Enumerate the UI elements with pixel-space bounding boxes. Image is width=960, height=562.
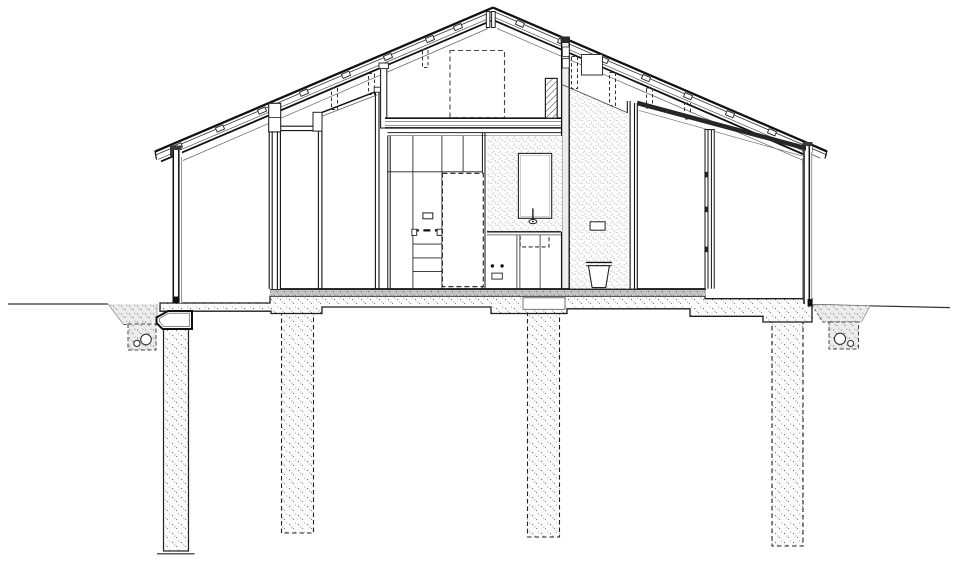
floor-slab (157, 289, 813, 329)
pile-2 (282, 312, 314, 533)
toilet-body (588, 266, 609, 288)
floor-screed-band (270, 289, 706, 296)
porch-ceiling-line (639, 110, 803, 156)
right-wall-base-plate (808, 299, 812, 307)
pile-1 (164, 328, 189, 551)
wall-c-top-cap (561, 37, 570, 44)
knob-right (500, 264, 503, 267)
slab-recessed-box (523, 298, 565, 310)
sink-dashed-outline (520, 236, 549, 247)
edge-beam-detail (157, 311, 193, 329)
worktop-bracket-left (412, 229, 417, 235)
worktop-bracket-right (437, 229, 442, 235)
roof-left-line3 (158, 18, 491, 160)
loft-post-cap (379, 63, 388, 69)
roof-vent-box (582, 55, 603, 76)
drain-pipe-large-left (141, 334, 152, 345)
knob-left (491, 264, 494, 267)
wall-c-body (561, 42, 570, 288)
porch-roof-beam (637, 101, 806, 151)
roof-right-line2 (493, 11, 827, 155)
wall-outlet (590, 222, 605, 230)
slab-outline (160, 296, 812, 322)
kitchen (388, 133, 485, 289)
sloped-panel-top-line (322, 91, 378, 113)
faucet-dot (532, 221, 534, 223)
left-wall-base-plate (173, 297, 179, 304)
foundation-piles (157, 312, 803, 554)
roof-left-top-line (155, 8, 493, 152)
drain-pipe-large-right (834, 333, 845, 344)
refrigerator-dashed-outline (442, 173, 483, 286)
sloped-panel-top-line2 (322, 95, 378, 117)
drawer-handle (492, 273, 502, 279)
toilet-room-wall-stipple (570, 88, 628, 289)
ridge-post-left (486, 12, 490, 28)
pile-4 (772, 321, 803, 546)
loft (385, 51, 561, 136)
loft-floor-body (385, 118, 561, 128)
pile-3 (528, 312, 560, 537)
mirror (518, 153, 551, 218)
wall-c-block2 (562, 59, 569, 69)
drain-pipe-small-left (134, 340, 140, 346)
chimney-hatch-cut (545, 78, 557, 118)
wall-d-body (627, 101, 638, 289)
wall-c-block1 (562, 47, 569, 57)
wall-b-top-blocking (313, 112, 322, 131)
sloped-panel-cap (374, 87, 380, 92)
house-section-svg (0, 0, 960, 562)
skylight-shaft-dashed (450, 51, 505, 118)
roof-left-line2 (155, 11, 493, 155)
section-drawing-page (0, 0, 960, 562)
roof-right-top-line (493, 8, 827, 152)
drain-pipe-small-right (848, 341, 854, 347)
cabinet-handle-niche (423, 213, 433, 219)
ridge-post-right (492, 12, 496, 28)
